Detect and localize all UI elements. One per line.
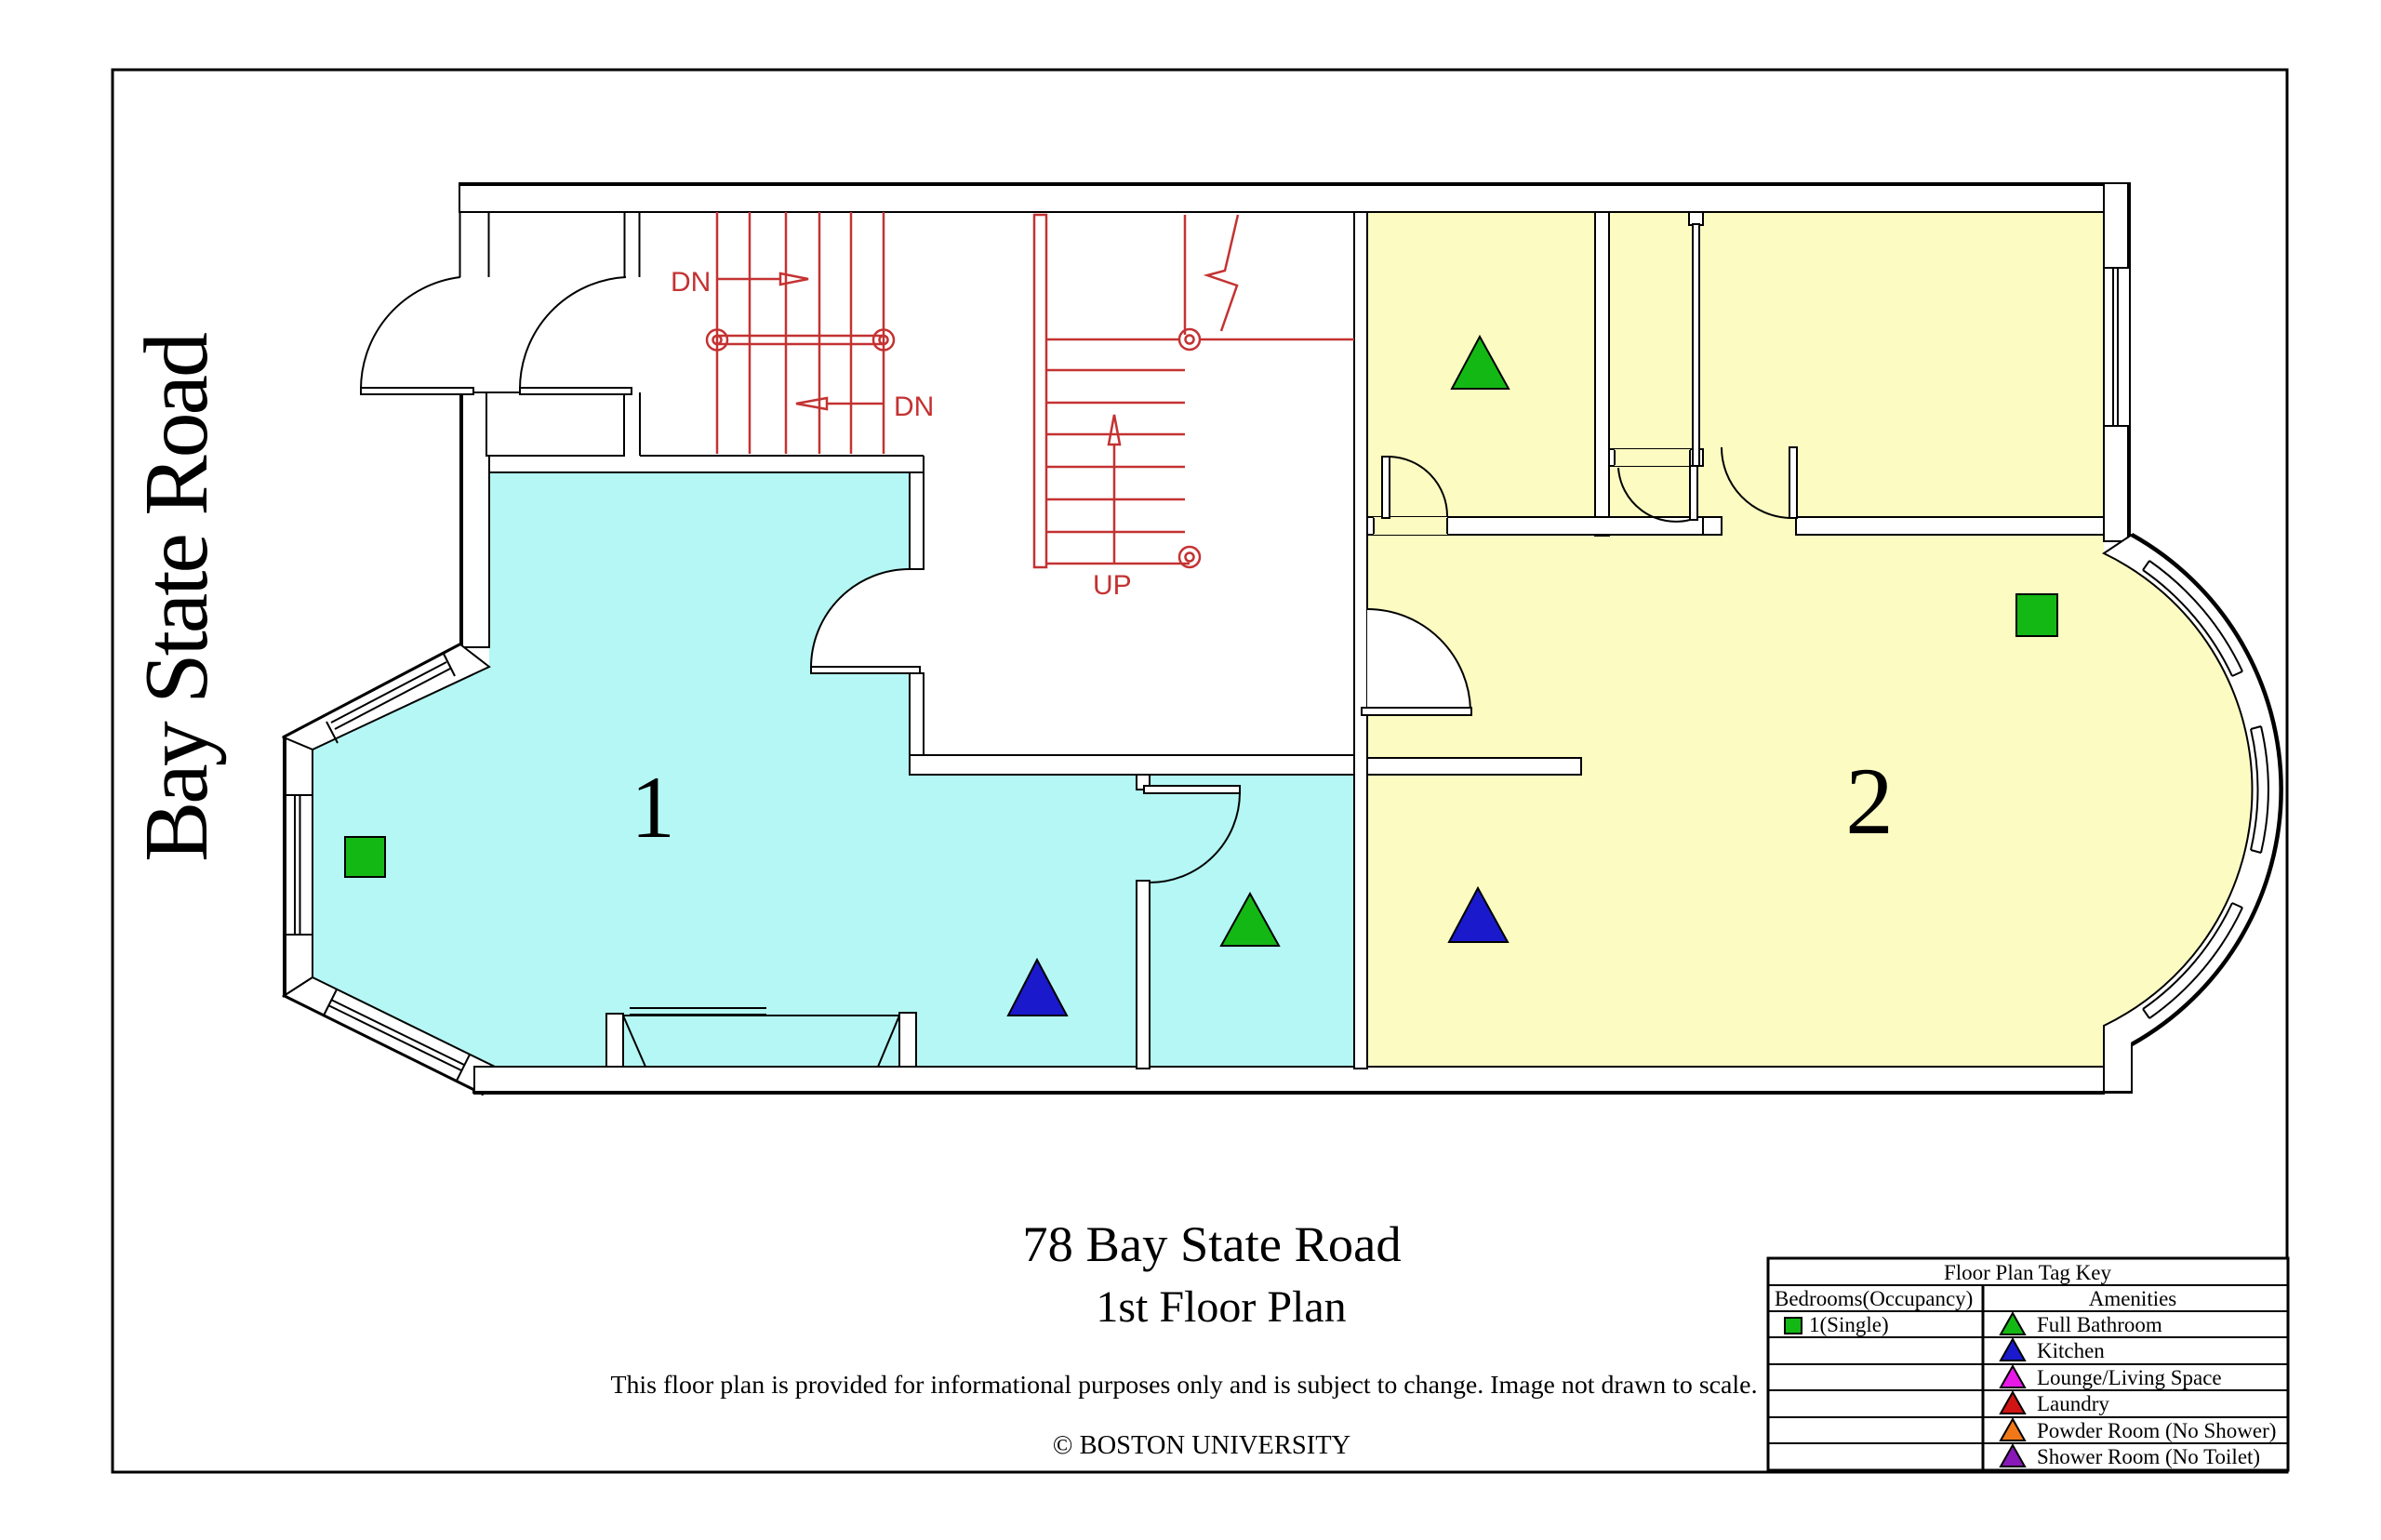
svg-text:Floor Plan Tag Key: Floor Plan Tag Key [1944, 1261, 2112, 1284]
svg-text:DN: DN [894, 392, 934, 422]
svg-text:© BOSTON UNIVERSITY: © BOSTON UNIVERSITY [1053, 1431, 1350, 1460]
svg-text:Powder Room (No Shower): Powder Room (No Shower) [2037, 1419, 2276, 1442]
svg-text:Lounge/Living Space: Lounge/Living Space [2037, 1366, 2222, 1389]
svg-text:Full Bathroom: Full Bathroom [2037, 1313, 2162, 1336]
svg-text:78 Bay State Road: 78 Bay State Road [1022, 1215, 1401, 1272]
svg-text:DN: DN [671, 267, 711, 298]
svg-text:1st Floor Plan: 1st Floor Plan [1096, 1282, 1346, 1332]
svg-text:Bedrooms(Occupancy): Bedrooms(Occupancy) [1775, 1287, 1973, 1310]
svg-text:Kitchen: Kitchen [2037, 1339, 2105, 1362]
svg-text:This floor plan is provided fo: This floor plan is provided for informat… [610, 1371, 1757, 1400]
svg-text:Shower Room (No Toilet): Shower Room (No Toilet) [2037, 1445, 2260, 1468]
svg-text:1(Single): 1(Single) [1809, 1313, 1889, 1336]
svg-text:2: 2 [1845, 749, 1894, 855]
svg-text:Amenities: Amenities [2089, 1287, 2177, 1310]
svg-text:Bay State Road: Bay State Road [126, 332, 227, 862]
svg-text:Laundry: Laundry [2037, 1392, 2109, 1415]
svg-text:UP: UP [1093, 570, 1132, 601]
svg-text:1: 1 [631, 758, 675, 856]
